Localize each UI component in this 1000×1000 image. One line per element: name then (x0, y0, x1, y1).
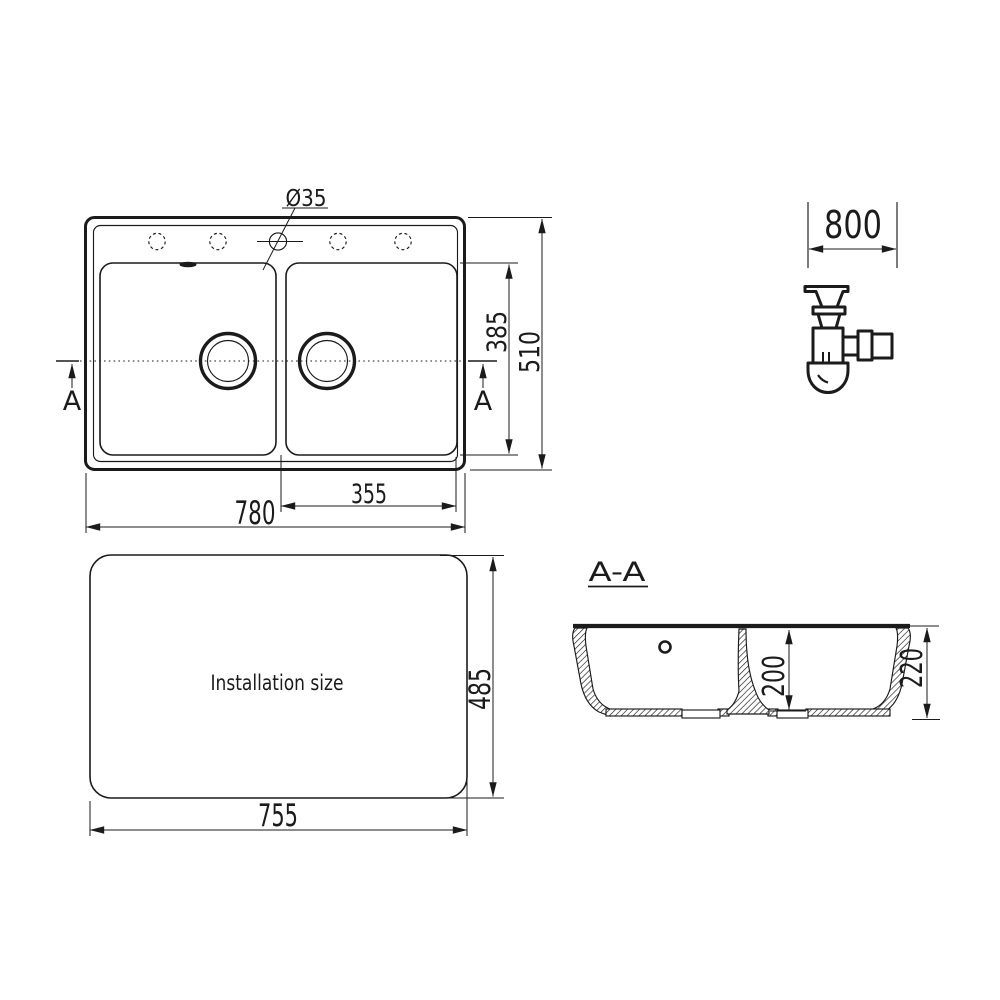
dim-installation-width-755: 755 (90, 740, 467, 836)
dim-bowl-width-355: 355 (281, 455, 456, 512)
section-bottom-right (806, 709, 890, 716)
left-drain-outer (201, 334, 256, 389)
sink-outline (56, 218, 497, 470)
hole-diameter-callout: Ø35 (263, 186, 328, 270)
tap-hole-option-5 (395, 233, 411, 249)
technical-drawing-page: Ø35 780 355 510 385 (0, 0, 1000, 1000)
section-marker-right-label: A (474, 386, 493, 417)
dim-height-label: 510 (513, 331, 546, 373)
installation-width-label: 755 (258, 798, 298, 834)
dim-sink-width-780: 780 (86, 473, 465, 533)
technical-drawing: Ø35 780 355 510 385 (0, 0, 1000, 1000)
installation-view: Installation size 755 485 (90, 555, 504, 836)
right-drain-inner (307, 341, 348, 382)
section-bottom-left (606, 709, 682, 716)
section-overflow-hole (660, 642, 671, 653)
cabinet-width-indicator: 800 (805, 202, 897, 393)
sink-outer-edge (86, 218, 465, 470)
section-marker-left: A (56, 361, 82, 417)
dim-installation-height-485: 485 (440, 556, 504, 799)
cabinet-width-label: 800 (824, 203, 882, 247)
dim-bowl-depth-200: 200 (757, 630, 806, 711)
tap-hole-option-1 (149, 233, 165, 249)
dim-width-label: 780 (235, 494, 276, 532)
right-bowl (286, 263, 457, 455)
hole-diameter-label: Ø35 (286, 186, 327, 212)
total-depth-label: 220 (895, 648, 930, 688)
installation-label: Installation size (211, 671, 344, 695)
installation-height-label: 485 (463, 668, 497, 710)
siphon-outlet-flange (858, 331, 872, 360)
top-view: Ø35 780 355 510 385 (56, 186, 552, 533)
section-title: A-A (589, 557, 647, 588)
left-drain-inner (208, 341, 249, 382)
dim-bowl-height-label: 385 (482, 311, 513, 353)
siphon-flange (805, 287, 848, 308)
siphon-cup (808, 363, 848, 393)
section-view: A-A 200 220 (573, 557, 940, 720)
section-left-wall (573, 628, 610, 716)
right-drain-outer (300, 334, 355, 389)
section-marker-left-label: A (63, 386, 82, 417)
left-bowl (100, 263, 276, 455)
left-drain-recess (682, 710, 720, 718)
bowl-depth-label: 200 (757, 655, 792, 697)
dim-bowl-width-label: 355 (351, 479, 387, 510)
section-marker-right: A (468, 361, 497, 417)
tap-hole-option-4 (330, 233, 346, 249)
tap-hole-option-2 (210, 233, 226, 249)
overflow-slot (180, 262, 197, 268)
dim-bowl-height-385: 385 (460, 263, 518, 455)
siphon-icon (805, 287, 892, 393)
siphon-neck (818, 314, 840, 328)
siphon-outlet-end (872, 334, 892, 358)
